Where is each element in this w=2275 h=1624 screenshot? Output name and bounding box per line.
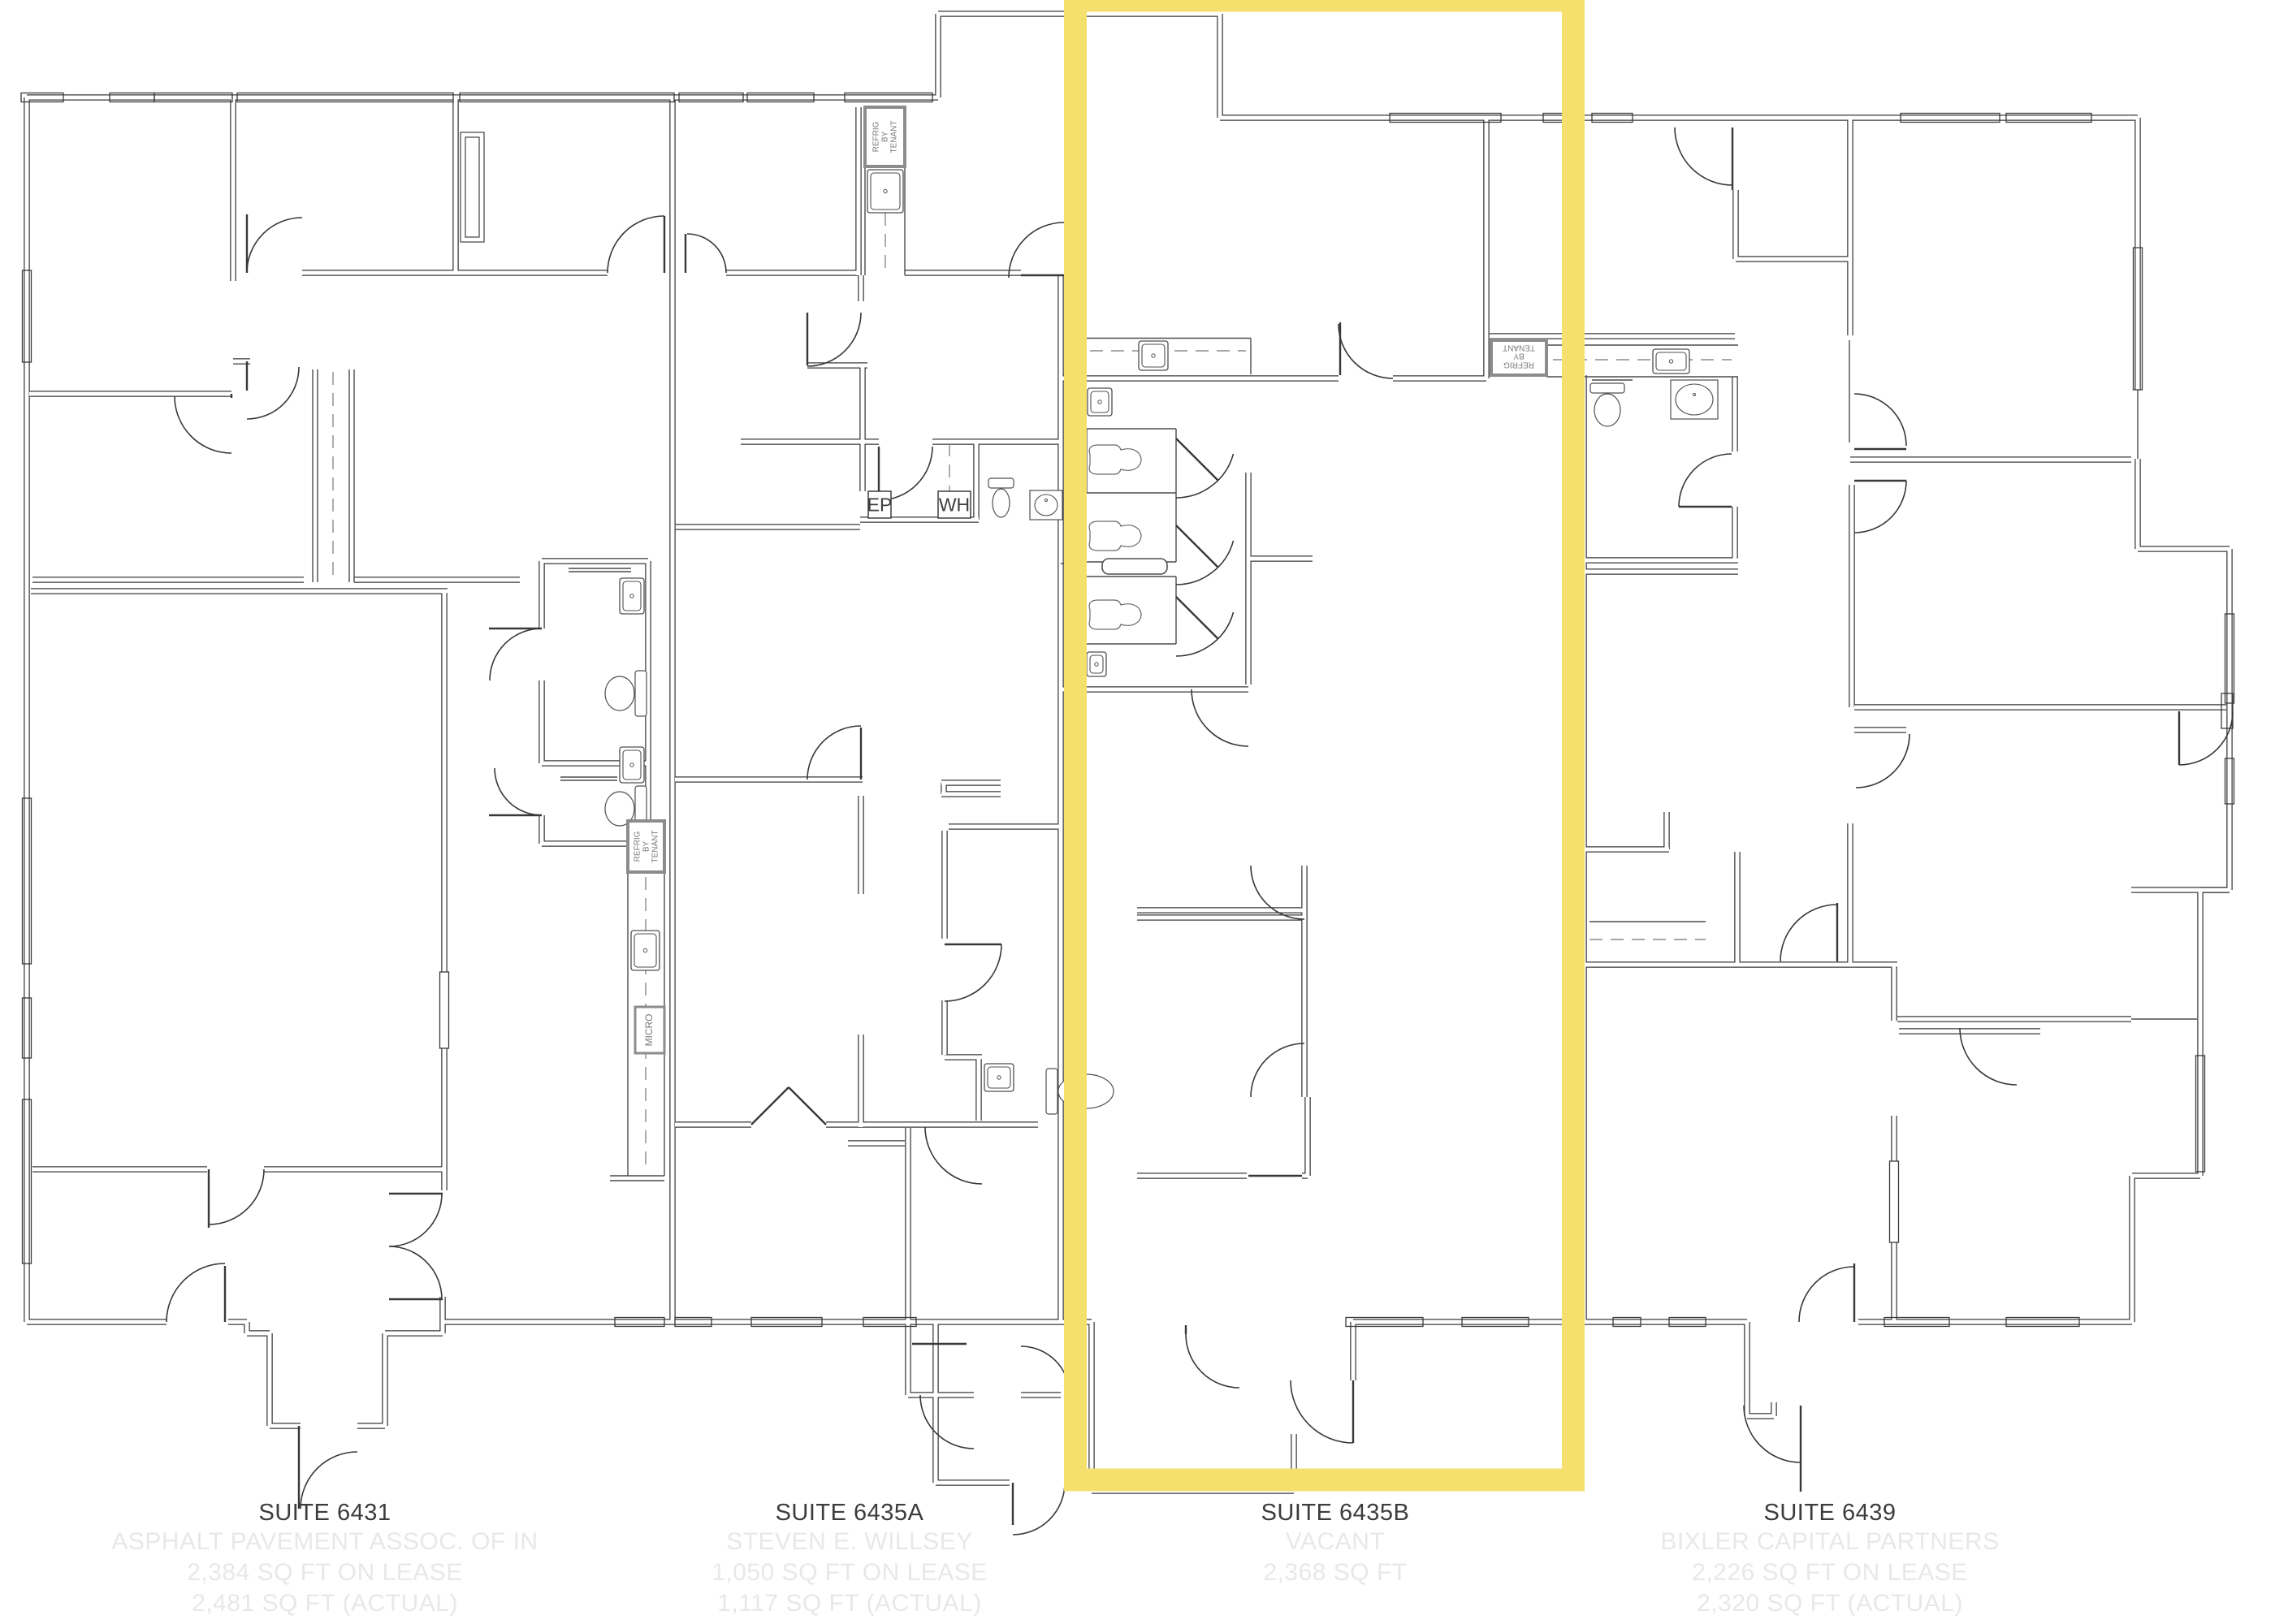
svg-text:2,320 SQ FT (ACTUAL): 2,320 SQ FT (ACTUAL) — [1697, 1590, 1963, 1617]
svg-text:SUITE 6435B: SUITE 6435B — [1261, 1500, 1410, 1526]
svg-text:SUITE 6431: SUITE 6431 — [259, 1500, 391, 1526]
svg-text:BY: BY — [881, 132, 890, 143]
svg-text:EP: EP — [867, 495, 893, 516]
svg-text:REFRIG: REFRIG — [1503, 361, 1534, 369]
svg-text:REFRIG: REFRIG — [872, 121, 881, 152]
svg-text:TENANT: TENANT — [1503, 343, 1535, 352]
svg-text:BY: BY — [642, 841, 651, 853]
svg-text:WH: WH — [939, 495, 970, 516]
svg-text:MICRO: MICRO — [643, 1014, 655, 1047]
svg-text:TENANT: TENANT — [890, 121, 899, 153]
svg-text:STEVEN E. WILLSEY: STEVEN E. WILLSEY — [726, 1528, 973, 1555]
svg-text:ASPHALT PAVEMENT ASSOC. OF IN: ASPHALT PAVEMENT ASSOC. OF IN — [111, 1528, 538, 1555]
svg-text:2,226 SQ FT ON LEASE: 2,226 SQ FT ON LEASE — [1692, 1559, 1968, 1586]
svg-text:BIXLER CAPITAL PARTNERS: BIXLER CAPITAL PARTNERS — [1660, 1528, 1999, 1555]
svg-text:TENANT: TENANT — [651, 831, 660, 863]
svg-text:2,368 SQ FT: 2,368 SQ FT — [1263, 1559, 1407, 1586]
svg-text:SUITE 6439: SUITE 6439 — [1764, 1500, 1897, 1526]
svg-text:2,384 SQ FT ON LEASE: 2,384 SQ FT ON LEASE — [187, 1559, 463, 1586]
svg-text:1,117 SQ FT (ACTUAL): 1,117 SQ FT (ACTUAL) — [717, 1590, 982, 1617]
svg-text:SUITE 6435A: SUITE 6435A — [776, 1500, 924, 1526]
svg-text:VACANT: VACANT — [1286, 1528, 1385, 1555]
svg-text:1,050 SQ FT ON LEASE: 1,050 SQ FT ON LEASE — [711, 1559, 988, 1586]
svg-text:2,481 SQ FT (ACTUAL): 2,481 SQ FT (ACTUAL) — [192, 1590, 458, 1617]
svg-text:REFRIG: REFRIG — [634, 831, 642, 862]
